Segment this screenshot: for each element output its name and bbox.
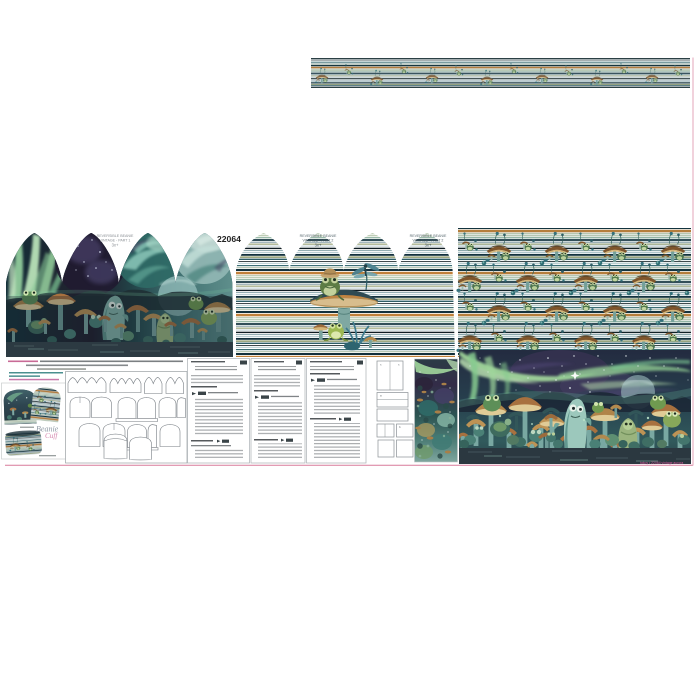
svg-text:Cuff: Cuff: [45, 432, 58, 440]
svg-text:3x+: 3x+: [425, 243, 432, 248]
svg-text:REVERSIBLE BEANIE: REVERSIBLE BEANIE: [97, 234, 134, 238]
svg-text:takoy • 22064 vintage auror: takoy • 22064 vintage aurora: [640, 461, 683, 465]
svg-text:REVERSIBLE BEANIE: REVERSIBLE BEANIE: [410, 234, 447, 238]
svg-text:3x+: 3x+: [112, 243, 119, 248]
svg-text:3x+: 3x+: [315, 243, 322, 248]
svg-text:REVERSIBLE BEANIE: REVERSIBLE BEANIE: [300, 234, 337, 238]
svg-text:22064: 22064: [217, 234, 241, 244]
